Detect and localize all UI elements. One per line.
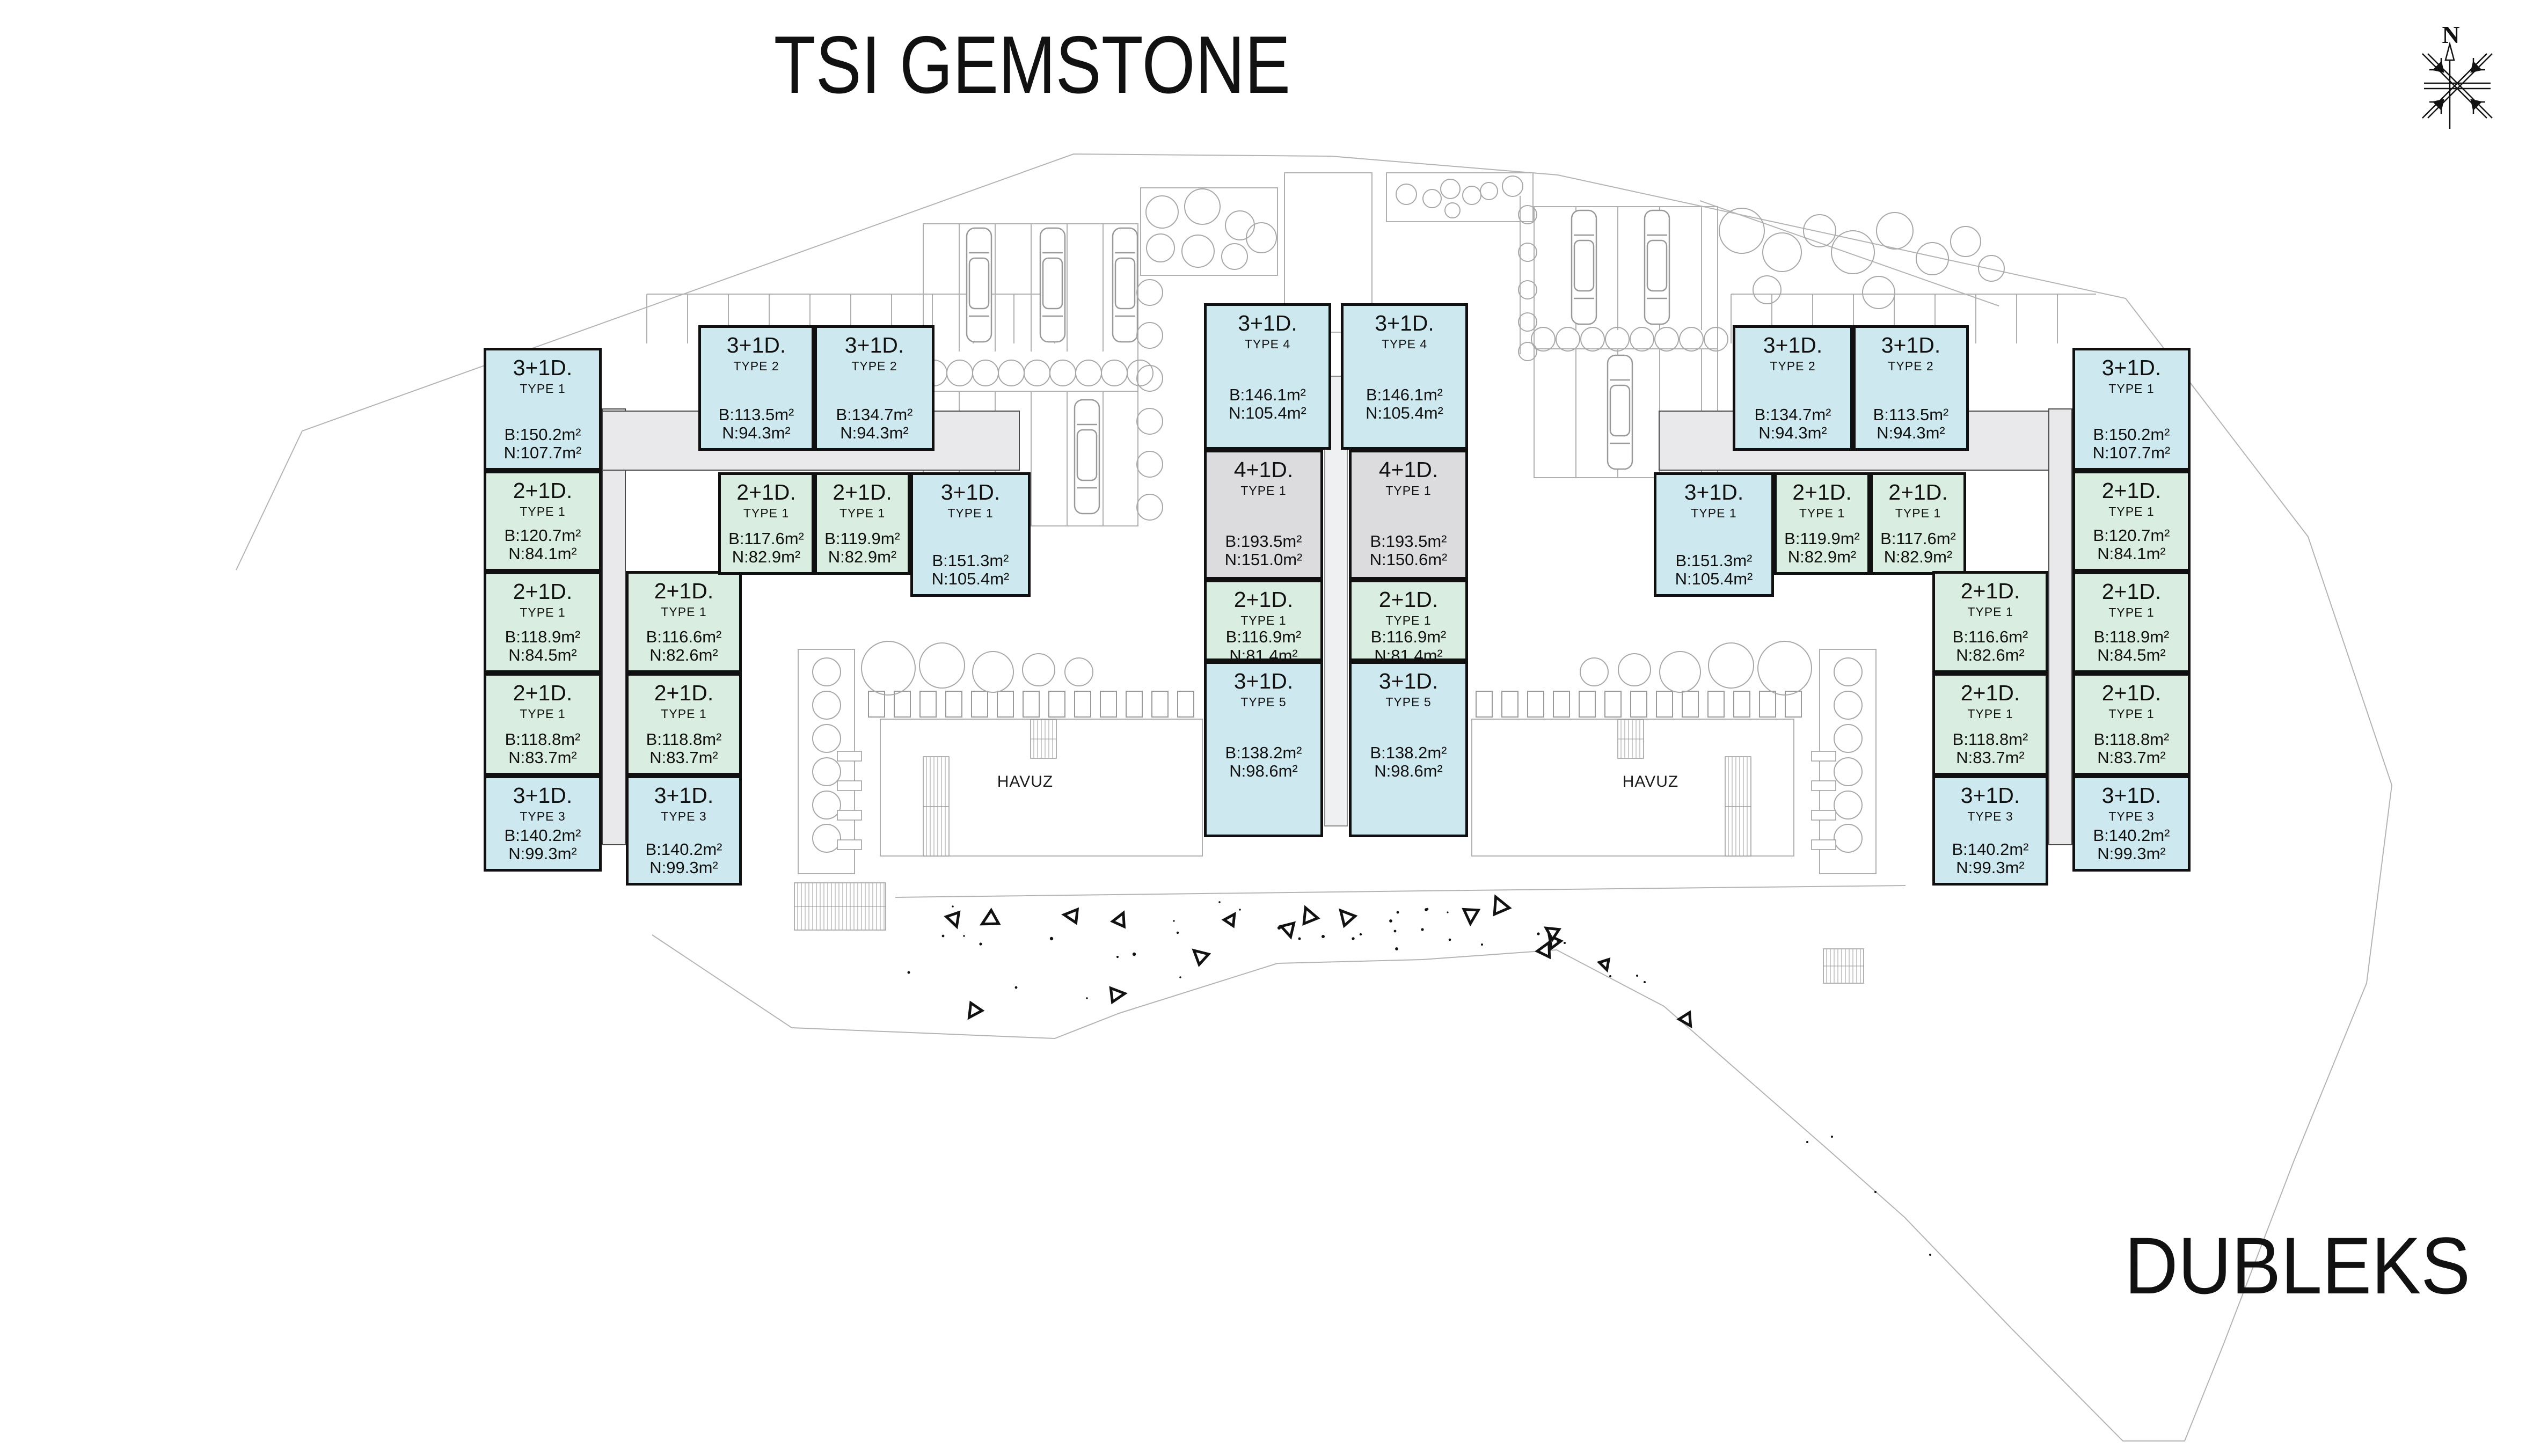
- unit-gross-area: B:146.1m²: [1229, 386, 1306, 405]
- unit-type-label: TYPE 1: [2108, 605, 2154, 620]
- unit-net-area: N:84.1m²: [504, 545, 581, 564]
- unit-text: 2+1D.TYPE 1B:118.8m²N:83.7m²: [1935, 676, 2046, 773]
- unit-net-area: N:94.3m²: [1873, 424, 1949, 443]
- unit-areas: B:134.7m²N:94.3m²: [1754, 406, 1831, 443]
- unit-gross-area: B:116.9m²: [1371, 628, 1447, 647]
- unit-east-rt1: 3+1D.TYPE 2B:134.7m²N:94.3m²: [1733, 325, 1853, 451]
- unit-net-area: N:105.4m²: [1229, 404, 1306, 423]
- unit-plan-label: 3+1D.: [1234, 670, 1294, 692]
- unit-text: 2+1D.TYPE 1B:120.7m²N:84.1m²: [486, 473, 599, 569]
- unit-type-label: TYPE 1: [1240, 613, 1286, 628]
- unit-net-area: N:82.6m²: [646, 646, 722, 665]
- unit-east-c3: 3+1D.TYPE 3B:140.2m²N:99.3m²: [1932, 775, 2048, 886]
- unit-gross-area: B:120.7m²: [2093, 526, 2170, 545]
- unit-type-label: TYPE 1: [520, 707, 565, 721]
- unit-areas: B:193.5m²N:151.0m²: [1225, 532, 1303, 569]
- unit-gross-area: B:150.2m²: [2093, 426, 2171, 444]
- unit-areas: B:138.2m²N:98.6m²: [1370, 744, 1447, 781]
- unit-west-a1: 3+1D.TYPE 1B:150.2m²N:107.7m²: [484, 348, 602, 471]
- unit-type-label: TYPE 2: [1888, 359, 1933, 374]
- unit-areas: B:150.2m²N:107.7m²: [504, 426, 582, 463]
- unit-gross-area: B:116.6m²: [646, 628, 722, 647]
- unit-plan-label: 2+1D.: [736, 481, 796, 503]
- unit-text: 3+1D.TYPE 5B:138.2m²N:98.6m²: [1207, 664, 1320, 786]
- unit-type-label: TYPE 4: [1382, 337, 1427, 352]
- unit-net-area: N:99.3m²: [645, 859, 722, 877]
- unit-type-label: TYPE 1: [1691, 506, 1736, 521]
- unit-gross-area: B:140.2m²: [504, 826, 581, 845]
- unit-west-b2: 2+1D.TYPE 1B:118.8m²N:83.7m²: [626, 673, 742, 775]
- unit-west-s1: 2+1D.TYPE 1B:117.6m²N:82.9m²: [718, 472, 814, 575]
- unit-gross-area: B:120.7m²: [504, 526, 581, 545]
- unit-gross-area: B:117.6m²: [1880, 530, 1956, 548]
- unit-gross-area: B:118.8m²: [646, 730, 722, 749]
- unit-net-area: N:83.7m²: [505, 749, 581, 767]
- unit-areas: B:146.1m²N:105.4m²: [1229, 386, 1306, 423]
- unit-text: 2+1D.TYPE 1B:119.9m²N:82.9m²: [1777, 475, 1867, 572]
- unit-text: 3+1D.TYPE 2B:113.5m²N:94.3m²: [701, 328, 812, 448]
- unit-gross-area: B:193.5m²: [1370, 532, 1448, 551]
- unit-areas: B:117.6m²N:82.9m²: [1880, 530, 1956, 567]
- unit-type-label: TYPE 1: [661, 707, 706, 721]
- unit-plan-label: 3+1D.: [1961, 785, 2020, 807]
- unit-plan-label: 3+1D.: [2102, 785, 2162, 807]
- unit-gross-area: B:118.8m²: [2094, 730, 2170, 749]
- unit-gross-area: B:146.1m²: [1366, 386, 1443, 405]
- unit-type-label: TYPE 4: [1245, 337, 1290, 352]
- unit-gross-area: B:118.9m²: [505, 628, 581, 647]
- unit-plan-label: 3+1D.: [845, 334, 904, 356]
- corridor-0: [602, 408, 626, 845]
- site-plan-canvas: TSI GEMSTONE DUBLEKS N HAVUZ HAVUZ 3+1D.…: [0, 0, 2526, 1456]
- unit-plan-label: 3+1D.: [513, 357, 573, 379]
- unit-areas: B:150.2m²N:107.7m²: [2093, 426, 2171, 463]
- compass-north-label: N: [2435, 20, 2467, 49]
- unit-text: 2+1D.TYPE 1B:120.7m²N:84.1m²: [2075, 473, 2188, 569]
- unit-net-area: N:94.3m²: [1754, 424, 1831, 443]
- unit-type-label: TYPE 1: [1799, 506, 1845, 521]
- unit-text: 3+1D.TYPE 2B:134.7m²N:94.3m²: [1735, 328, 1850, 448]
- unit-areas: B:119.9m²N:82.9m²: [1784, 530, 1860, 567]
- unit-center-east-cr4: 3+1D.TYPE 5B:138.2m²N:98.6m²: [1349, 661, 1468, 837]
- unit-plan-label: 4+1D.: [1234, 459, 1294, 481]
- unit-net-area: N:98.6m²: [1370, 762, 1447, 781]
- unit-center-west-cl2: 4+1D.TYPE 1B:193.5m²N:151.0m²: [1204, 450, 1323, 580]
- unit-areas: B:140.2m²N:99.3m²: [2093, 826, 2170, 864]
- unit-areas: B:116.6m²N:82.6m²: [646, 628, 722, 665]
- unit-text: 3+1D.TYPE 2B:134.7m²N:94.3m²: [817, 328, 932, 448]
- unit-plan-label: 3+1D.: [1684, 481, 1744, 503]
- unit-net-area: N:84.5m²: [505, 646, 581, 665]
- unit-type-label: TYPE 1: [520, 504, 565, 519]
- unit-west-b3: 3+1D.TYPE 3B:140.2m²N:99.3m²: [626, 775, 742, 886]
- unit-areas: B:151.3m²N:105.4m²: [932, 552, 1010, 589]
- unit-text: 2+1D.TYPE 1B:117.6m²N:82.9m²: [721, 475, 812, 572]
- unit-west-s2: 2+1D.TYPE 1B:119.9m²N:82.9m²: [814, 472, 910, 575]
- unit-net-area: N:82.9m²: [728, 548, 804, 567]
- unit-type-label: TYPE 1: [520, 382, 565, 396]
- unit-type-label: TYPE 1: [1967, 707, 2013, 721]
- unit-gross-area: B:113.5m²: [719, 406, 794, 425]
- compass-rose-icon: [2422, 44, 2492, 129]
- unit-type-label: TYPE 5: [1385, 695, 1431, 709]
- unit-text: 2+1D.TYPE 1B:118.8m²N:83.7m²: [486, 676, 599, 773]
- unit-plan-label: 3+1D.: [654, 785, 714, 807]
- unit-gross-area: B:116.6m²: [1953, 628, 2028, 647]
- unit-gross-area: B:140.2m²: [1952, 840, 2028, 859]
- unit-text: 3+1D.TYPE 3B:140.2m²N:99.3m²: [1935, 778, 2046, 883]
- unit-text: 3+1D.TYPE 3B:140.2m²N:99.3m²: [629, 778, 739, 883]
- unit-net-area: N:94.3m²: [836, 424, 912, 443]
- unit-net-area: N:84.5m²: [2094, 646, 2170, 665]
- unit-areas: B:113.5m²N:94.3m²: [1873, 406, 1949, 443]
- unit-plan-label: 3+1D.: [941, 481, 1001, 503]
- unit-areas: B:119.9m²N:82.9m²: [824, 530, 900, 567]
- unit-areas: B:140.2m²N:99.3m²: [504, 826, 581, 864]
- unit-gross-area: B:134.7m²: [1754, 406, 1831, 425]
- unit-areas: B:118.8m²N:83.7m²: [646, 730, 722, 767]
- unit-plan-label: 2+1D.: [654, 682, 714, 704]
- unit-plan-label: 2+1D.: [1792, 481, 1852, 503]
- unit-west-b1: 2+1D.TYPE 1B:116.6m²N:82.6m²: [626, 571, 742, 673]
- unit-type-label: TYPE 1: [1967, 605, 2013, 619]
- unit-type-label: TYPE 2: [1770, 359, 1815, 374]
- unit-type-label: TYPE 3: [661, 809, 706, 824]
- unit-plan-label: 2+1D.: [1379, 589, 1439, 611]
- unit-center-west-cl1: 3+1D.TYPE 4B:146.1m²N:105.4m²: [1204, 303, 1331, 450]
- unit-gross-area: B:116.9m²: [1226, 628, 1302, 647]
- unit-gross-area: B:118.8m²: [505, 730, 581, 749]
- unit-text: 2+1D.TYPE 1B:116.6m²N:82.6m²: [1935, 574, 2046, 670]
- unit-net-area: N:151.0m²: [1225, 551, 1303, 569]
- unit-text: 3+1D.TYPE 3B:140.2m²N:99.3m²: [2075, 778, 2188, 869]
- unit-center-west-cl4: 3+1D.TYPE 5B:138.2m²N:98.6m²: [1204, 661, 1323, 837]
- unit-plan-label: 2+1D.: [1234, 589, 1294, 611]
- unit-net-area: N:83.7m²: [2094, 749, 2170, 767]
- unit-text: 3+1D.TYPE 1B:151.3m²N:105.4m²: [913, 475, 1028, 594]
- unit-plan-label: 2+1D.: [2102, 581, 2162, 603]
- unit-type-label: TYPE 1: [839, 506, 885, 521]
- unit-plan-label: 2+1D.: [654, 580, 714, 602]
- unit-plan-label: 2+1D.: [513, 682, 573, 704]
- unit-plan-label: 2+1D.: [513, 480, 573, 502]
- unit-gross-area: B:119.9m²: [824, 530, 900, 548]
- unit-text: 3+1D.TYPE 3B:140.2m²N:99.3m²: [486, 778, 599, 869]
- pool-label-west: HAVUZ: [972, 773, 1079, 791]
- unit-type-label: TYPE 1: [661, 605, 706, 619]
- unit-type-label: TYPE 1: [1240, 484, 1286, 498]
- unit-type-label: TYPE 1: [743, 506, 789, 521]
- unit-west-a5: 3+1D.TYPE 3B:140.2m²N:99.3m²: [484, 775, 602, 872]
- unit-plan-label: 2+1D.: [1888, 481, 1948, 503]
- corridor-3: [2048, 408, 2072, 845]
- unit-gross-area: B:138.2m²: [1370, 744, 1447, 763]
- unit-text: 2+1D.TYPE 1B:119.9m²N:82.9m²: [817, 475, 908, 572]
- unit-net-area: N:99.3m²: [504, 845, 581, 864]
- unit-plan-label: 2+1D.: [1961, 682, 2020, 704]
- unit-type-label: TYPE 1: [947, 506, 993, 521]
- unit-areas: B:117.6m²N:82.9m²: [728, 530, 804, 567]
- unit-areas: B:118.8m²N:83.7m²: [505, 730, 581, 767]
- unit-plan-label: 2+1D.: [2102, 682, 2162, 704]
- unit-areas: B:116.6m²N:82.6m²: [1953, 628, 2028, 665]
- unit-text: 3+1D.TYPE 1B:151.3m²N:105.4m²: [1656, 475, 1771, 594]
- unit-gross-area: B:113.5m²: [1873, 406, 1949, 425]
- unit-plan-label: 3+1D.: [1881, 334, 1941, 356]
- unit-gross-area: B:140.2m²: [2093, 826, 2170, 845]
- unit-plan-label: 3+1D.: [1238, 312, 1297, 334]
- unit-center-east-cr3: 2+1D.TYPE 1B:116.9m²N:81.4m²: [1349, 580, 1468, 661]
- unit-text: 3+1D.TYPE 1B:150.2m²N:107.7m²: [2075, 350, 2188, 468]
- unit-west-s3: 3+1D.TYPE 1B:151.3m²N:105.4m²: [910, 472, 1031, 597]
- unit-areas: B:113.5m²N:94.3m²: [719, 406, 794, 443]
- unit-net-area: N:83.7m²: [646, 749, 722, 767]
- unit-type-label: TYPE 1: [520, 605, 565, 620]
- unit-gross-area: B:138.2m²: [1225, 744, 1302, 763]
- unit-text: 3+1D.TYPE 4B:146.1m²N:105.4m²: [1207, 306, 1328, 428]
- unit-type-label: TYPE 1: [2108, 382, 2154, 396]
- unit-east-d4: 2+1D.TYPE 1B:118.8m²N:83.7m²: [2072, 673, 2191, 775]
- unit-plan-label: 2+1D.: [833, 481, 892, 503]
- unit-center-west-cl3: 2+1D.TYPE 1B:116.9m²N:81.4m²: [1204, 580, 1323, 661]
- unit-net-area: N:107.7m²: [504, 444, 582, 463]
- unit-net-area: N:105.4m²: [932, 570, 1010, 589]
- unit-net-area: N:82.9m²: [824, 548, 900, 567]
- page-title: TSI GEMSTONE: [0, 18, 2064, 112]
- unit-west-a4: 2+1D.TYPE 1B:118.8m²N:83.7m²: [484, 673, 602, 775]
- unit-areas: B:146.1m²N:105.4m²: [1366, 386, 1443, 423]
- unit-plan-label: 4+1D.: [1379, 459, 1439, 481]
- unit-text: 2+1D.TYPE 1B:118.8m²N:83.7m²: [629, 676, 739, 773]
- unit-net-area: N:150.6m²: [1370, 551, 1448, 569]
- unit-net-area: N:98.6m²: [1225, 762, 1302, 781]
- unit-net-area: N:82.6m²: [1953, 646, 2028, 665]
- unit-type-label: TYPE 2: [851, 359, 897, 374]
- unit-type-label: TYPE 1: [1385, 484, 1431, 498]
- unit-text: 2+1D.TYPE 1B:116.9m²N:81.4m²: [1352, 582, 1465, 659]
- unit-east-d3: 2+1D.TYPE 1B:118.9m²N:84.5m²: [2072, 572, 2191, 673]
- unit-text: 2+1D.TYPE 1B:118.9m²N:84.5m²: [2075, 574, 2188, 670]
- unit-west-a2: 2+1D.TYPE 1B:120.7m²N:84.1m²: [484, 471, 602, 572]
- unit-type-label: TYPE 1: [1385, 613, 1431, 628]
- unit-type-label: TYPE 3: [1967, 809, 2013, 824]
- unit-net-area: N:94.3m²: [719, 424, 794, 443]
- unit-net-area: N:107.7m²: [2093, 444, 2171, 463]
- unit-net-area: N:82.9m²: [1880, 548, 1956, 567]
- unit-plan-label: 3+1D.: [2102, 357, 2162, 379]
- unit-type-label: TYPE 3: [2108, 809, 2154, 824]
- unit-gross-area: B:134.7m²: [836, 406, 912, 425]
- unit-east-d2: 2+1D.TYPE 1B:120.7m²N:84.1m²: [2072, 471, 2191, 572]
- unit-type-label: TYPE 2: [733, 359, 779, 374]
- unit-net-area: N:84.1m²: [2093, 545, 2170, 564]
- unit-plan-label: 3+1D.: [1375, 312, 1434, 334]
- unit-type-label: TYPE 1: [1895, 506, 1941, 521]
- unit-plan-label: 2+1D.: [1961, 580, 2020, 602]
- unit-areas: B:138.2m²N:98.6m²: [1225, 744, 1302, 781]
- unit-gross-area: B:150.2m²: [504, 426, 582, 444]
- unit-type-label: TYPE 1: [2108, 707, 2154, 721]
- corner-label: DUBLEKS: [2109, 1219, 2485, 1312]
- unit-plan-label: 2+1D.: [513, 581, 573, 603]
- unit-areas: B:120.7m²N:84.1m²: [504, 526, 581, 564]
- unit-areas: B:193.5m²N:150.6m²: [1370, 532, 1448, 569]
- unit-east-c1: 2+1D.TYPE 1B:116.6m²N:82.6m²: [1932, 571, 2048, 673]
- unit-gross-area: B:140.2m²: [645, 840, 722, 859]
- unit-gross-area: B:118.8m²: [1953, 730, 2028, 749]
- unit-text: 3+1D.TYPE 5B:138.2m²N:98.6m²: [1352, 664, 1465, 786]
- unit-plan-label: 3+1D.: [513, 785, 573, 807]
- unit-areas: B:116.9m²N:81.4m²: [1226, 628, 1302, 665]
- unit-gross-area: B:193.5m²: [1225, 532, 1303, 551]
- unit-east-d5: 3+1D.TYPE 3B:140.2m²N:99.3m²: [2072, 775, 2191, 872]
- unit-west-a3: 2+1D.TYPE 1B:118.9m²N:84.5m²: [484, 572, 602, 673]
- unit-areas: B:120.7m²N:84.1m²: [2093, 526, 2170, 564]
- unit-text: 3+1D.TYPE 4B:146.1m²N:105.4m²: [1344, 306, 1465, 428]
- unit-gross-area: B:151.3m²: [1675, 552, 1753, 570]
- unit-gross-area: B:118.9m²: [2094, 628, 2170, 647]
- unit-gross-area: B:119.9m²: [1784, 530, 1860, 548]
- unit-plan-label: 3+1D.: [727, 334, 786, 356]
- unit-text: 2+1D.TYPE 1B:116.9m²N:81.4m²: [1207, 582, 1320, 659]
- unit-west-t2: 3+1D.TYPE 2B:134.7m²N:94.3m²: [814, 325, 935, 451]
- unit-text: 3+1D.TYPE 2B:113.5m²N:94.3m²: [1856, 328, 1966, 448]
- pool-label-east: HAVUZ: [1597, 773, 1704, 791]
- unit-east-rs2: 2+1D.TYPE 1B:117.6m²N:82.9m²: [1870, 472, 1966, 575]
- unit-net-area: N:99.3m²: [1952, 859, 2028, 877]
- unit-areas: B:151.3m²N:105.4m²: [1675, 552, 1753, 589]
- unit-plan-label: 3+1D.: [1763, 334, 1823, 356]
- unit-center-east-cr2: 4+1D.TYPE 1B:193.5m²N:150.6m²: [1349, 450, 1468, 580]
- unit-text: 4+1D.TYPE 1B:193.5m²N:151.0m²: [1207, 452, 1320, 575]
- unit-areas: B:116.9m²N:81.4m²: [1371, 628, 1447, 665]
- unit-net-area: N:105.4m²: [1675, 570, 1753, 589]
- unit-areas: B:140.2m²N:99.3m²: [1952, 840, 2028, 877]
- unit-areas: B:134.7m²N:94.3m²: [836, 406, 912, 443]
- unit-text: 2+1D.TYPE 1B:117.6m²N:82.9m²: [1873, 475, 1963, 572]
- unit-type-label: TYPE 1: [2108, 504, 2154, 519]
- unit-plan-label: 3+1D.: [1379, 670, 1439, 692]
- unit-east-rs0: 3+1D.TYPE 1B:151.3m²N:105.4m²: [1654, 472, 1774, 597]
- unit-plan-label: 2+1D.: [2102, 480, 2162, 502]
- unit-areas: B:118.8m²N:83.7m²: [1953, 730, 2028, 767]
- unit-type-label: TYPE 5: [1240, 695, 1286, 709]
- unit-text: 2+1D.TYPE 1B:118.8m²N:83.7m²: [2075, 676, 2188, 773]
- unit-text: 4+1D.TYPE 1B:193.5m²N:150.6m²: [1352, 452, 1465, 575]
- unit-east-rs1: 2+1D.TYPE 1B:119.9m²N:82.9m²: [1774, 472, 1870, 575]
- unit-areas: B:140.2m²N:99.3m²: [645, 840, 722, 877]
- unit-text: 2+1D.TYPE 1B:118.9m²N:84.5m²: [486, 574, 599, 670]
- unit-areas: B:118.8m²N:83.7m²: [2094, 730, 2170, 767]
- unit-areas: B:118.9m²N:84.5m²: [505, 628, 581, 665]
- unit-net-area: N:105.4m²: [1366, 404, 1443, 423]
- unit-west-t1: 3+1D.TYPE 2B:113.5m²N:94.3m²: [698, 325, 814, 451]
- unit-net-area: N:99.3m²: [2093, 845, 2170, 864]
- unit-gross-area: B:117.6m²: [728, 530, 804, 548]
- unit-text: 3+1D.TYPE 1B:150.2m²N:107.7m²: [486, 350, 599, 468]
- unit-text: 2+1D.TYPE 1B:116.6m²N:82.6m²: [629, 574, 739, 670]
- unit-east-d1: 3+1D.TYPE 1B:150.2m²N:107.7m²: [2072, 348, 2191, 471]
- unit-net-area: N:82.9m²: [1784, 548, 1860, 567]
- unit-east-c2: 2+1D.TYPE 1B:118.8m²N:83.7m²: [1932, 673, 2048, 775]
- unit-center-east-cr1: 3+1D.TYPE 4B:146.1m²N:105.4m²: [1341, 303, 1468, 450]
- unit-areas: B:118.9m²N:84.5m²: [2094, 628, 2170, 665]
- unit-type-label: TYPE 3: [520, 809, 565, 824]
- unit-net-area: N:83.7m²: [1953, 749, 2028, 767]
- unit-east-rt2: 3+1D.TYPE 2B:113.5m²N:94.3m²: [1853, 325, 1969, 451]
- unit-gross-area: B:151.3m²: [932, 552, 1010, 570]
